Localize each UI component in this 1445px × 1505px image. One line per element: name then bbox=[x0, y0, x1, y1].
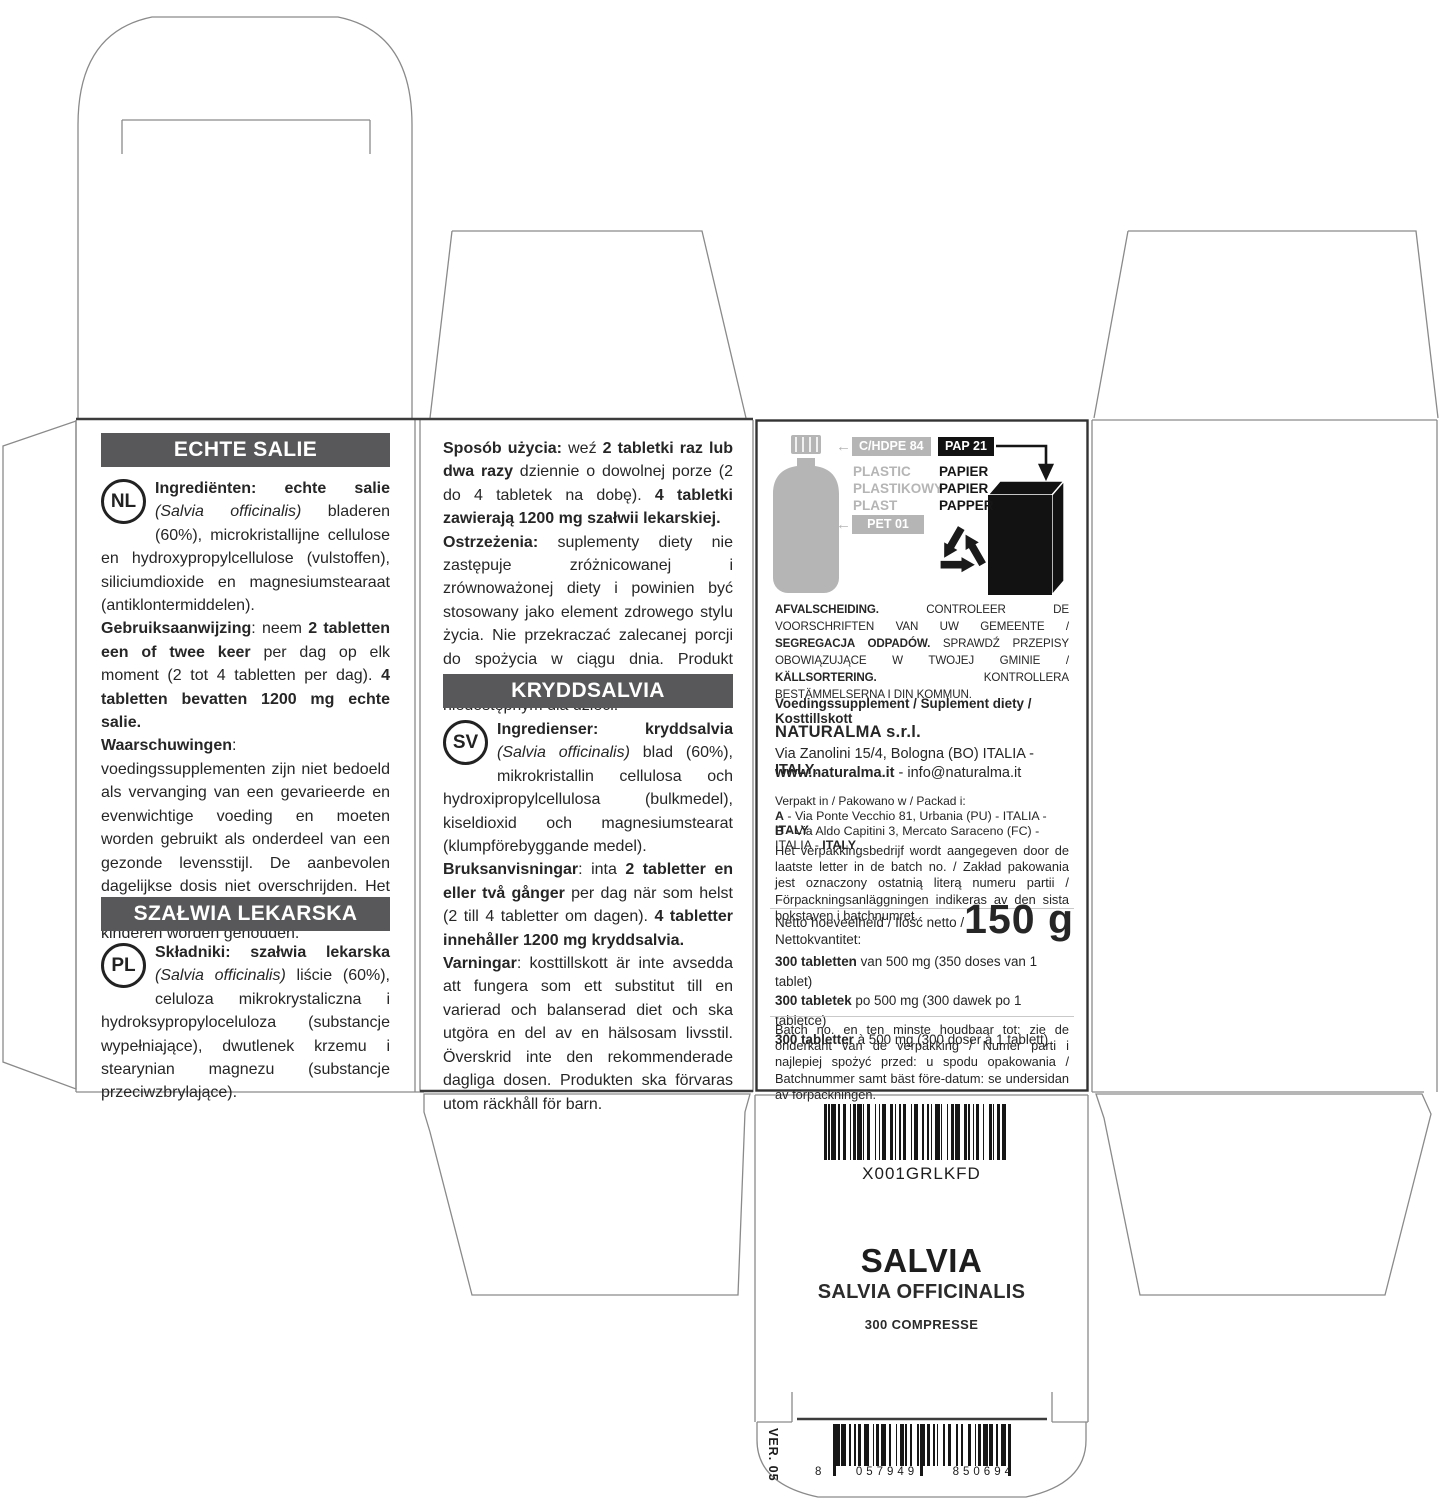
version-label: VER. 05 bbox=[766, 1428, 780, 1490]
pap-code-chip: PAP 21 bbox=[938, 437, 994, 456]
bottom-flap-b-outline bbox=[424, 1094, 750, 1295]
ean-digits: 8 057949 850694 bbox=[815, 1466, 1015, 1478]
product-subtitle: SALVIA OFFICINALIS bbox=[755, 1281, 1088, 1304]
packaging-dieline: ECHTE SALIE NL Ingrediënten: echte salie… bbox=[0, 0, 1445, 1505]
header-szalwia-lekarska: SZAŁWIA LEKARSKA bbox=[101, 897, 390, 931]
header-echte-salie: ECHTE SALIE bbox=[101, 433, 390, 467]
count-line-nl: 300 tabletten van 500 mg (350 doses van … bbox=[775, 952, 1075, 991]
header-kryddsalvia: KRYDDSALVIA bbox=[443, 674, 733, 708]
ean-digits-left: 057949 bbox=[856, 1466, 918, 1478]
top-flap-b-outline bbox=[430, 231, 746, 418]
nl-text-block: NL Ingrediënten: echte salie (Salvia off… bbox=[101, 477, 390, 945]
sv-text-block: SV Ingredienser: kryddsalvia (Salvia off… bbox=[443, 718, 733, 1116]
disposal-note: AFVALSCHEIDING. CONTROLEER DE VOORSCHRIF… bbox=[775, 601, 1069, 703]
net-quantity-label: Netto hoeveelheid / Ilość netto / Nettok… bbox=[775, 914, 975, 948]
top-flap-d-outline bbox=[1094, 231, 1438, 418]
pap-arrow bbox=[996, 446, 1052, 478]
divider bbox=[770, 1016, 1074, 1017]
lid-fold-line bbox=[122, 120, 370, 154]
ean-digits-right: 850694 bbox=[953, 1466, 1015, 1478]
product-count: 300 COMPRESSE bbox=[755, 1317, 1088, 1332]
batch-note: Batch no. en ten minste houdbaar tot: zi… bbox=[775, 1022, 1069, 1103]
company-name: NATURALMA s.r.l. bbox=[775, 723, 1069, 742]
sku-label: X001GRLKFD bbox=[755, 1164, 1088, 1184]
sku-barcode bbox=[824, 1104, 1022, 1160]
pl-usage: Sposób użycia: weź 2 tabletki raz lub dw… bbox=[443, 437, 733, 531]
sv-warnings: Varningar: kosttillskott är inte avsedda… bbox=[443, 952, 733, 1116]
bottom-flap-d-outline bbox=[1096, 1094, 1431, 1295]
bottle-icon bbox=[773, 435, 839, 593]
net-quantity-value: 150 g bbox=[948, 896, 1074, 943]
plastic-words: PLASTIC PLASTIKOWY PLAST bbox=[853, 463, 943, 514]
glue-flap-outline bbox=[3, 421, 76, 1089]
packed-intro: Verpakt in / Pakowano w / Packad i: bbox=[775, 794, 1069, 808]
lang-badge-pl: PL bbox=[101, 943, 146, 988]
recycle-icon bbox=[938, 524, 990, 572]
sv-directions: Bruksanvisningar: inta 2 tabletter en el… bbox=[443, 858, 733, 952]
left-arrow-icon: ← bbox=[836, 437, 851, 456]
ean-digit-first: 8 bbox=[815, 1466, 821, 1478]
supplement-line: Voedingssupplement / Suplement diety / K… bbox=[775, 696, 1069, 726]
left-arrow-icon: ← bbox=[836, 515, 851, 534]
tuck-flap-outline bbox=[78, 17, 412, 419]
plastic-code-chip: C/HDPE 84 bbox=[852, 437, 931, 456]
company-web: www.naturalma.it - info@naturalma.it bbox=[775, 765, 1075, 781]
paper-words: PAPIER PAPIER PAPPER bbox=[939, 463, 994, 514]
carton-icon bbox=[988, 481, 1064, 595]
lang-badge-sv: SV bbox=[443, 720, 488, 765]
nl-directions: Gebruiksaanwijzing: neem 2 tabletten een… bbox=[101, 617, 390, 734]
pet-code-chip: PET 01 bbox=[852, 515, 924, 534]
product-title: SALVIA bbox=[755, 1242, 1088, 1280]
lang-badge-nl: NL bbox=[101, 479, 146, 524]
pl-text-block: PL Składniki: szałwia lekarska (Salvia o… bbox=[101, 941, 390, 1105]
